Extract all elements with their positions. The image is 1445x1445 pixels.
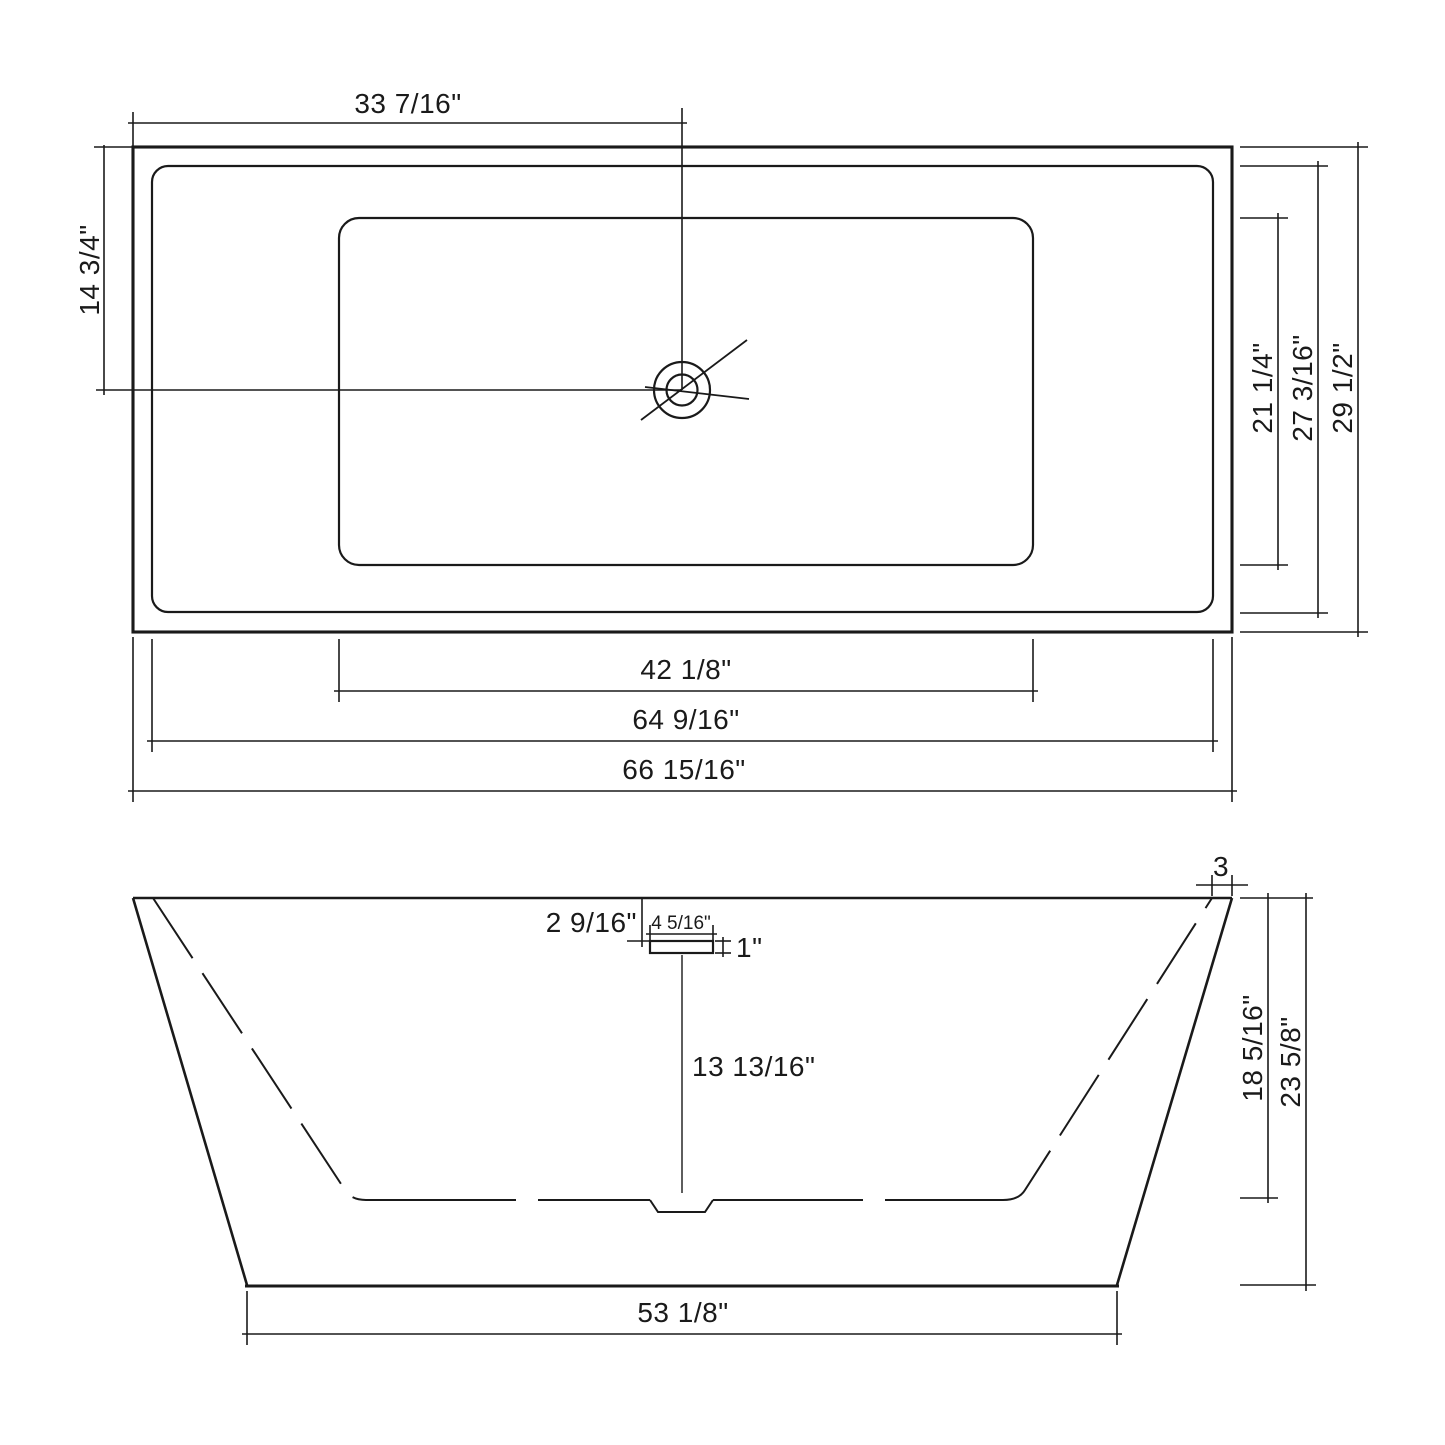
dim-basin-width: 21 1/4" xyxy=(1240,213,1288,570)
drain-recess-notch xyxy=(650,1200,713,1212)
dim-rim-wall-offset: 3 xyxy=(1196,851,1248,896)
dim-label-basin-width: 21 1/4" xyxy=(1247,342,1278,433)
inner-wall-right-dashed xyxy=(1003,898,1212,1200)
dim-label-overall-length: 66 15/16" xyxy=(622,754,745,785)
dim-label-overall-height: 23 5/8" xyxy=(1275,1016,1306,1107)
drain-symbol xyxy=(641,340,749,420)
bathtub-technical-drawing: 33 7/16" 14 3/4" 42 1/8" 64 9/16" xyxy=(0,0,1445,1445)
dim-drain-from-left: 33 7/16" xyxy=(128,88,687,390)
dim-base-length: 53 1/8" xyxy=(242,1291,1122,1345)
elevation-view: 2 9/16" 4 5/16" 1" 13 13/16" 3 xyxy=(133,851,1316,1345)
dim-label-overflow-length: 4 5/16" xyxy=(651,913,711,934)
drawing-sheet: 33 7/16" 14 3/4" 42 1/8" 64 9/16" xyxy=(0,0,1445,1445)
plan-view: 33 7/16" 14 3/4" 42 1/8" 64 9/16" xyxy=(74,88,1368,802)
dim-label-inner-depth: 18 5/16" xyxy=(1237,994,1268,1101)
dim-label-overflow-to-floor: 13 13/16" xyxy=(692,1051,815,1082)
dim-rim-to-overflow: 2 9/16" xyxy=(546,898,657,947)
dim-label-rim-wall-offset: 3 xyxy=(1213,851,1229,882)
dim-label-base-length: 53 1/8" xyxy=(637,1297,728,1328)
dim-label-drain-from-left: 33 7/16" xyxy=(354,88,461,119)
dim-overflow-to-floor: 13 13/16" xyxy=(692,1051,815,1082)
dim-overflow-height: 1" xyxy=(715,932,763,963)
dim-label-drain-from-top: 14 3/4" xyxy=(74,224,105,315)
dim-label-basin-length: 42 1/8" xyxy=(640,654,731,685)
dim-label-rim-to-overflow: 2 9/16" xyxy=(546,907,637,938)
dim-label-rim-width: 27 3/16" xyxy=(1287,334,1318,441)
inner-wall-left-dashed xyxy=(153,898,366,1200)
dim-basin-length: 42 1/8" xyxy=(334,639,1038,702)
dim-overflow-length: 4 5/16" xyxy=(646,913,717,942)
dim-label-overflow-height: 1" xyxy=(736,932,763,963)
dim-label-rim-length: 64 9/16" xyxy=(632,704,739,735)
dim-drain-from-top: 14 3/4" xyxy=(74,145,682,395)
overflow-fitting xyxy=(650,941,713,953)
dim-label-overall-width: 29 1/2" xyxy=(1327,342,1358,433)
